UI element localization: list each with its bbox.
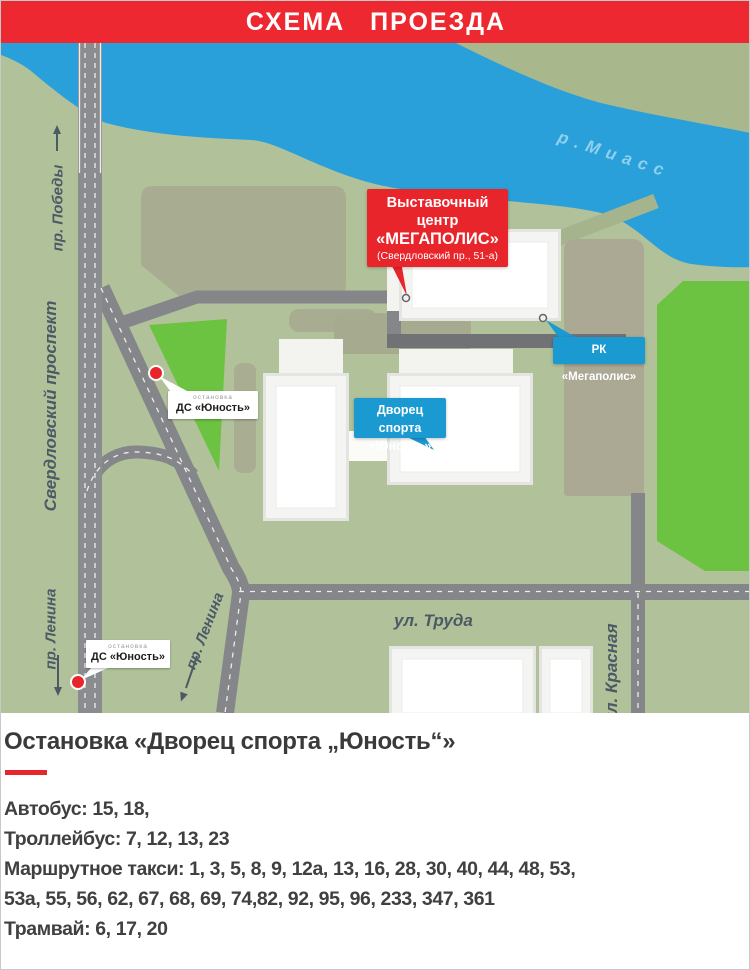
bus-stop-name-upper: ДС «Юность» bbox=[172, 402, 254, 415]
street-label-lenina-left: пр. Ленина bbox=[43, 589, 60, 670]
block-northwest bbox=[141, 186, 346, 296]
building-south-small bbox=[539, 646, 593, 713]
transit-line-trolleybus: Троллейбус: 7, 12, 13, 23 bbox=[4, 824, 747, 854]
palace-callout-line1: Дворец спорта bbox=[354, 401, 446, 437]
building-tall bbox=[263, 373, 349, 521]
expo-callout: Выставочный центр «МЕГАПОЛИС» (Свердловс… bbox=[367, 189, 508, 267]
expo-callout-address: (Свердловский пр., 51-а) bbox=[369, 250, 506, 263]
road-sverdlovsky bbox=[78, 43, 102, 713]
page-title: СХЕМА ПРОЕЗДА bbox=[246, 8, 506, 37]
rk-anchor-marker bbox=[540, 315, 547, 322]
bus-stop-caption-lower: остановка bbox=[90, 643, 166, 651]
bus-stop-caption-upper: остановка bbox=[172, 394, 254, 402]
bus-stop-label-lower: остановка ДС «Юность» bbox=[86, 640, 170, 668]
bus-stop-marker-lower bbox=[71, 675, 85, 689]
street-label-truda: ул. Труда bbox=[394, 611, 473, 631]
road-krasnaya bbox=[631, 493, 645, 713]
building-south-large bbox=[389, 646, 536, 713]
palace-callout-line2: «Юность» bbox=[354, 437, 446, 455]
park-east bbox=[657, 281, 750, 571]
rk-callout: РК «Мегаполис» bbox=[553, 337, 645, 364]
bus-stop-name-lower: ДС «Юность» bbox=[90, 651, 166, 664]
transit-info: Остановка «Дворец спорта „Юность“» Автоб… bbox=[1, 713, 750, 970]
expo-callout-line1: Выставочный центр bbox=[369, 194, 506, 230]
expo-callout-line2: «МЕГАПОЛИС» bbox=[369, 230, 506, 249]
transit-line-tram: Трамвай: 6, 17, 20 bbox=[4, 914, 747, 944]
route-map: р.Миасс пр. Победы Свердловский проспект… bbox=[1, 43, 750, 713]
street-label-pobedy: пр. Победы bbox=[50, 165, 67, 252]
red-rule bbox=[5, 770, 47, 775]
transit-lines: Автобус: 15, 18, Троллейбус: 7, 12, 13, … bbox=[4, 794, 747, 944]
header-banner: СХЕМА ПРОЕЗДА bbox=[1, 1, 750, 43]
page: СХЕМА ПРОЕЗДА bbox=[0, 0, 750, 970]
expo-anchor-marker bbox=[403, 295, 410, 302]
street-label-sverdlovsky: Свердловский проспект bbox=[41, 301, 61, 512]
transit-info-heading: Остановка «Дворец спорта „Юность“» bbox=[4, 727, 747, 757]
bus-stop-marker-upper bbox=[149, 366, 163, 380]
transit-line-marshrutka: Маршрутное такси: 1, 3, 5, 8, 9, 12а, 13… bbox=[4, 854, 747, 884]
transit-line-bus: Автобус: 15, 18, bbox=[4, 794, 747, 824]
palace-callout: Дворец спорта «Юность» bbox=[354, 398, 446, 438]
bus-stop-label-upper: остановка ДС «Юность» bbox=[168, 391, 258, 419]
transit-line-marshrutka-cont: 53а, 55, 56, 62, 67, 68, 69, 74,82, 92, … bbox=[4, 884, 747, 914]
street-label-krasnaya: ул. Красная bbox=[602, 624, 622, 723]
map-canvas bbox=[1, 43, 750, 713]
